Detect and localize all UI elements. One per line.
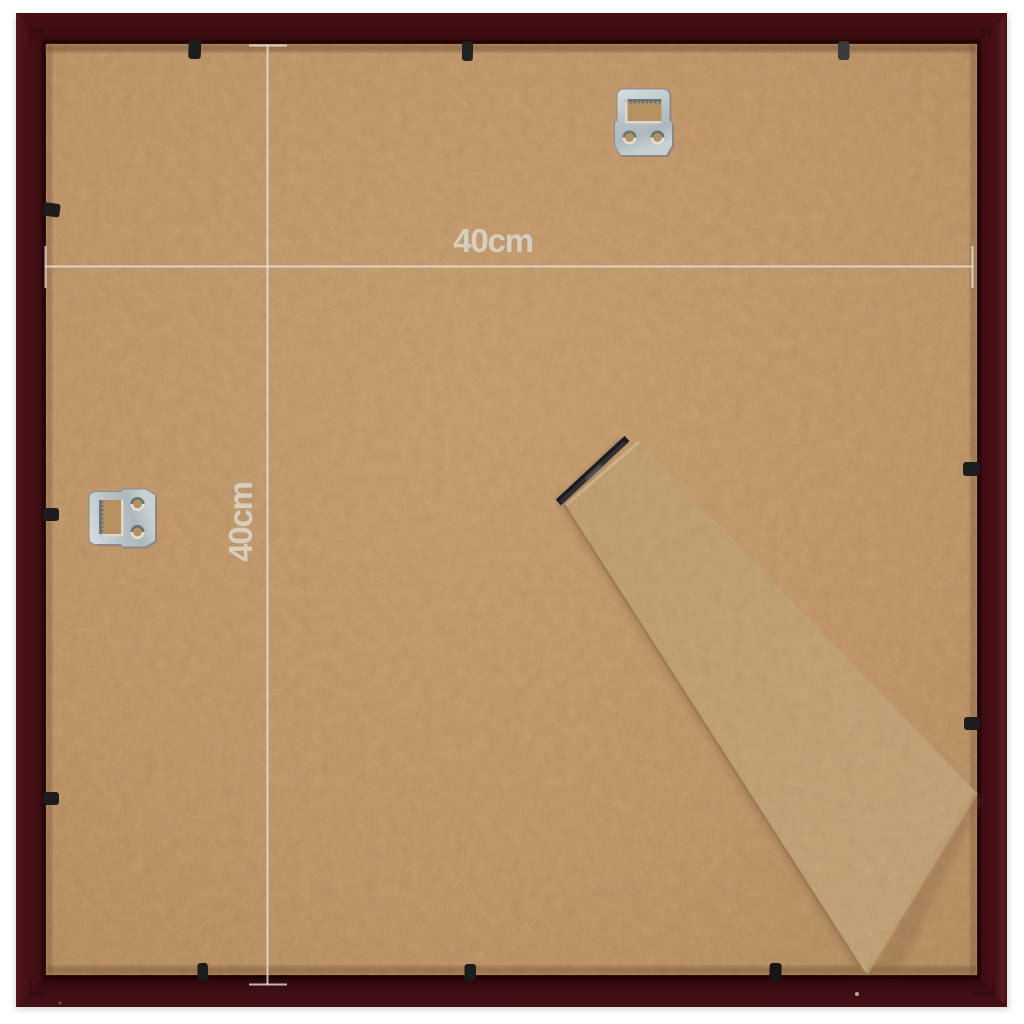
svg-text:40cm: 40cm	[453, 222, 533, 259]
svg-text:40cm: 40cm	[222, 482, 259, 562]
